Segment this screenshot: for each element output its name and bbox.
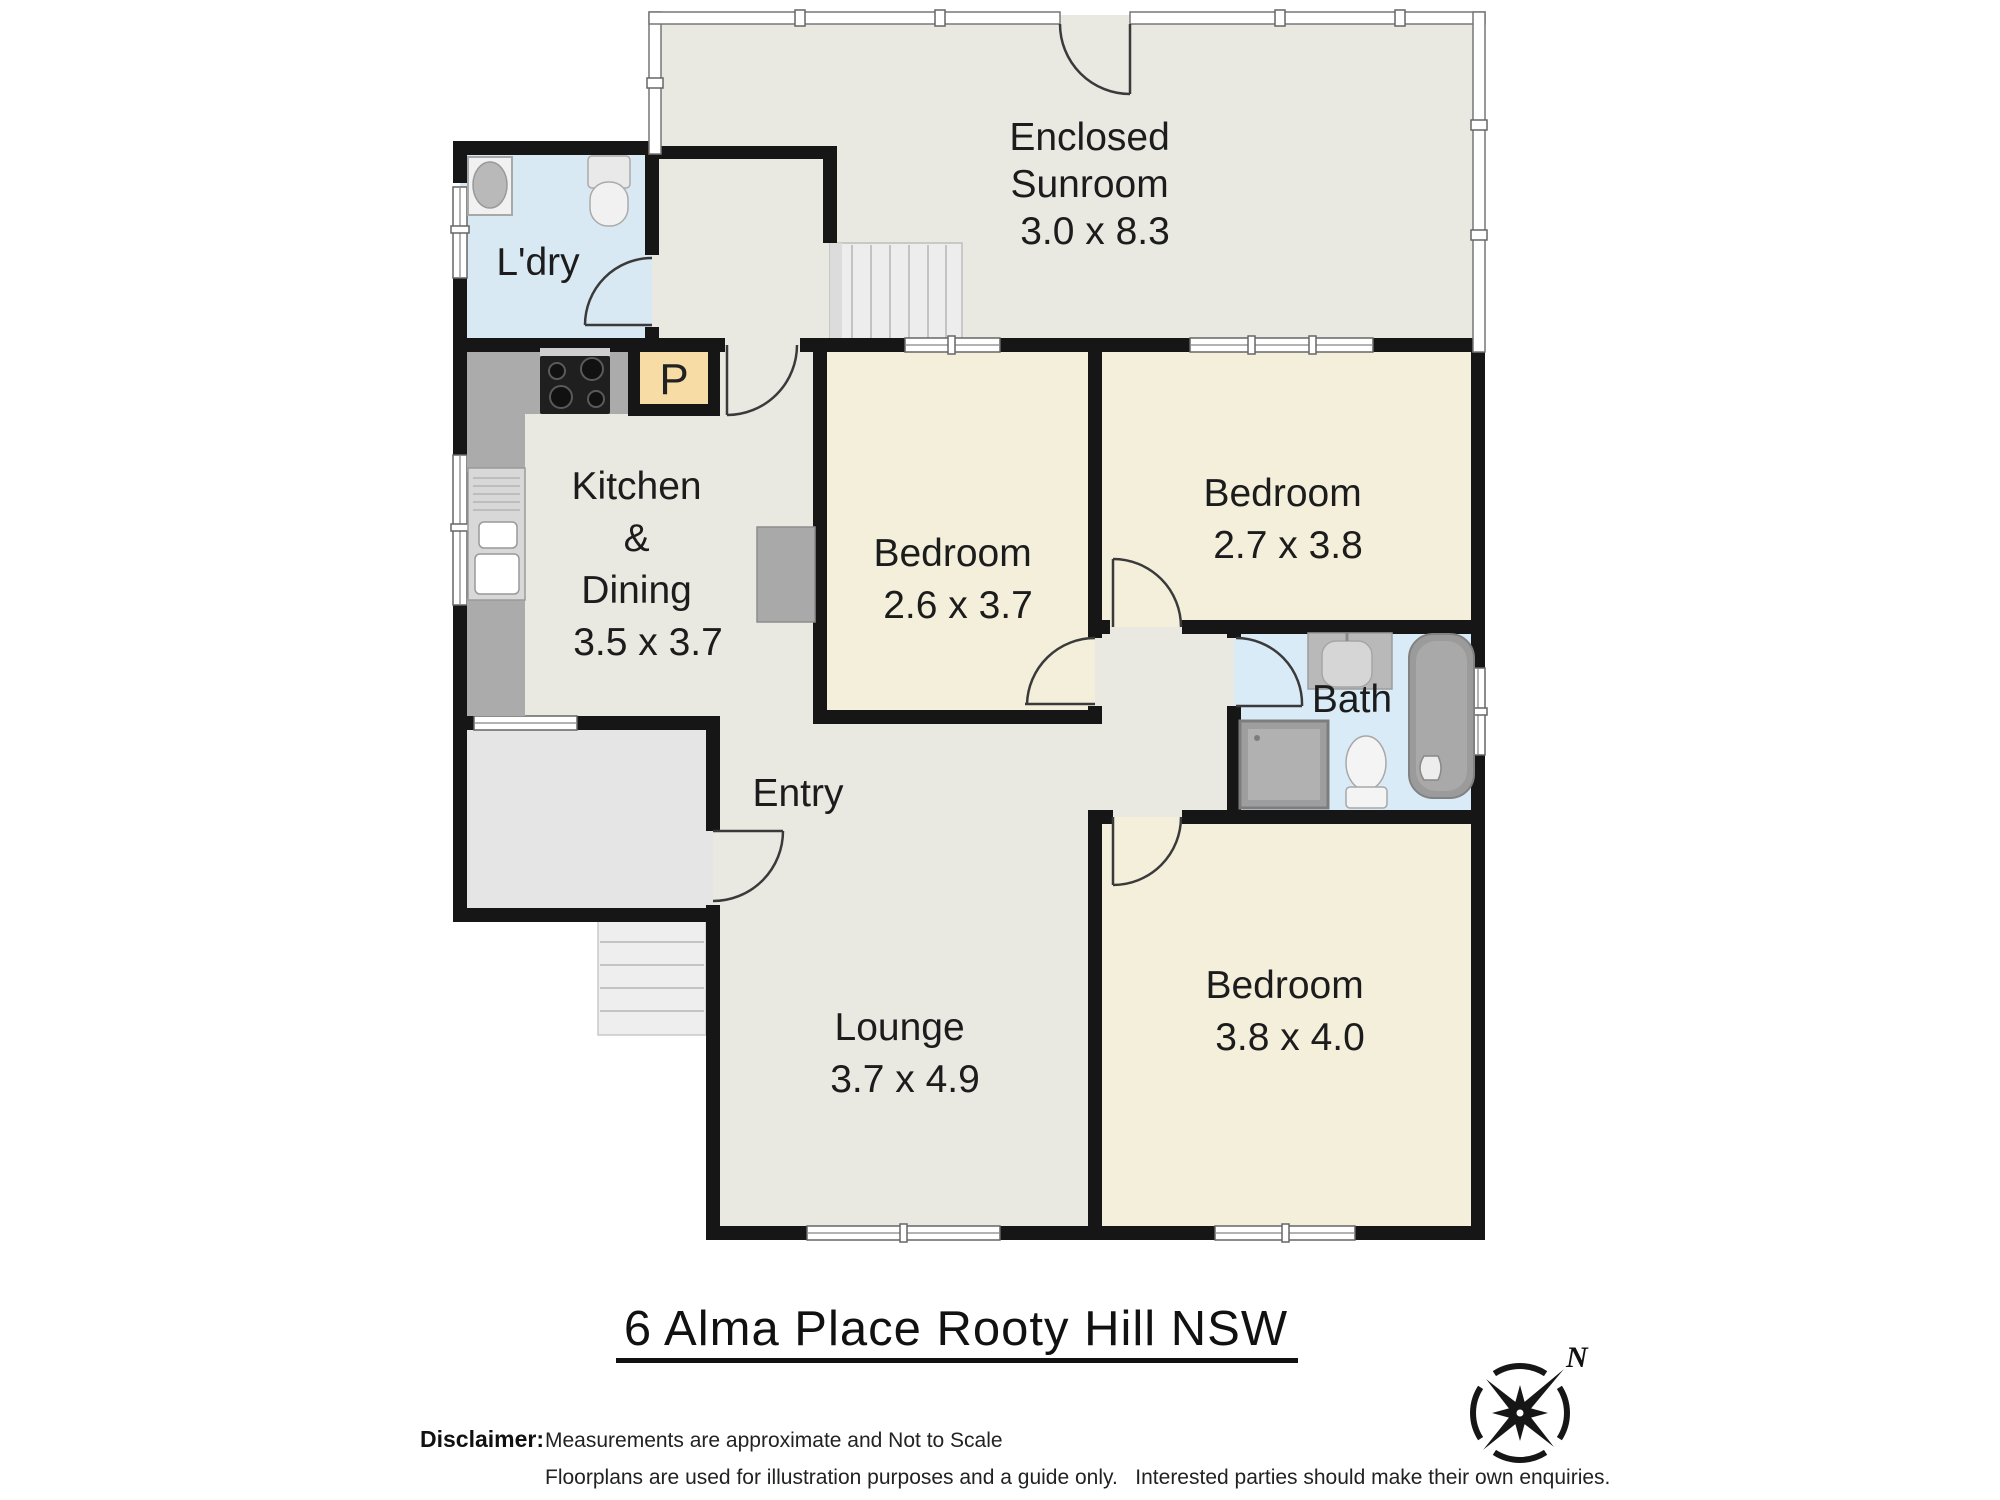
washing-machine-icon [468,157,512,215]
room-entry-floor [700,716,1102,922]
hallway-floor [1095,627,1234,817]
porch-floor [460,723,713,915]
room-bedroom1-floor [820,345,1095,717]
floorplan-page: P [0,0,2000,1500]
label-sunroom: Enclosed Sunroom 3.0 x 8.3 [1009,116,1180,253]
kitchen-window [451,455,469,605]
disclaimer-line1: Measurements are approximate and Not to … [545,1429,1003,1452]
bedroom3-window [1215,1224,1355,1242]
kitchen-counter-left [467,412,525,472]
kitchen-sink-icon [468,468,525,600]
disclaimer-line2: Floorplans are used for illustration pur… [545,1466,1610,1489]
refrigerator-icon [757,527,815,622]
compass-north-label: N [1565,1341,1589,1374]
bedroom1-window [905,336,1000,354]
shower-icon [1240,721,1328,808]
laundry-tub-icon [588,156,630,226]
disclaimer-label: Disclaimer: [420,1426,544,1452]
toilet-icon [1346,736,1387,808]
pantry-cupboard: P [628,340,720,416]
floorplan-drawing: P [0,0,2000,1500]
porch-window [474,716,577,730]
bedroom2-window [1190,336,1373,354]
compass-star [1483,1369,1564,1450]
disclaimer-block: Disclaimer: Measurements are approximate… [420,1426,1610,1489]
pantry-label: P [659,355,688,404]
internal-stairs [830,243,962,342]
front-steps [598,919,706,1035]
title-underline [616,1358,1298,1363]
compass-icon: N [1473,1341,1589,1460]
kitchen-counter-lower [467,598,525,716]
label-bath: Bath [1312,678,1392,721]
label-laundry: L'dry [496,241,580,284]
title-block: 6 Alma Place Rooty Hill NSW [616,1302,1298,1363]
laundry-window [451,187,469,278]
bathtub-icon [1409,634,1474,798]
lounge-window [807,1224,1000,1242]
bath-tap-icon [1420,756,1441,780]
cooktop-icon [540,348,610,414]
label-entry: Entry [752,772,844,815]
page-title: 6 Alma Place Rooty Hill NSW [624,1302,1288,1356]
